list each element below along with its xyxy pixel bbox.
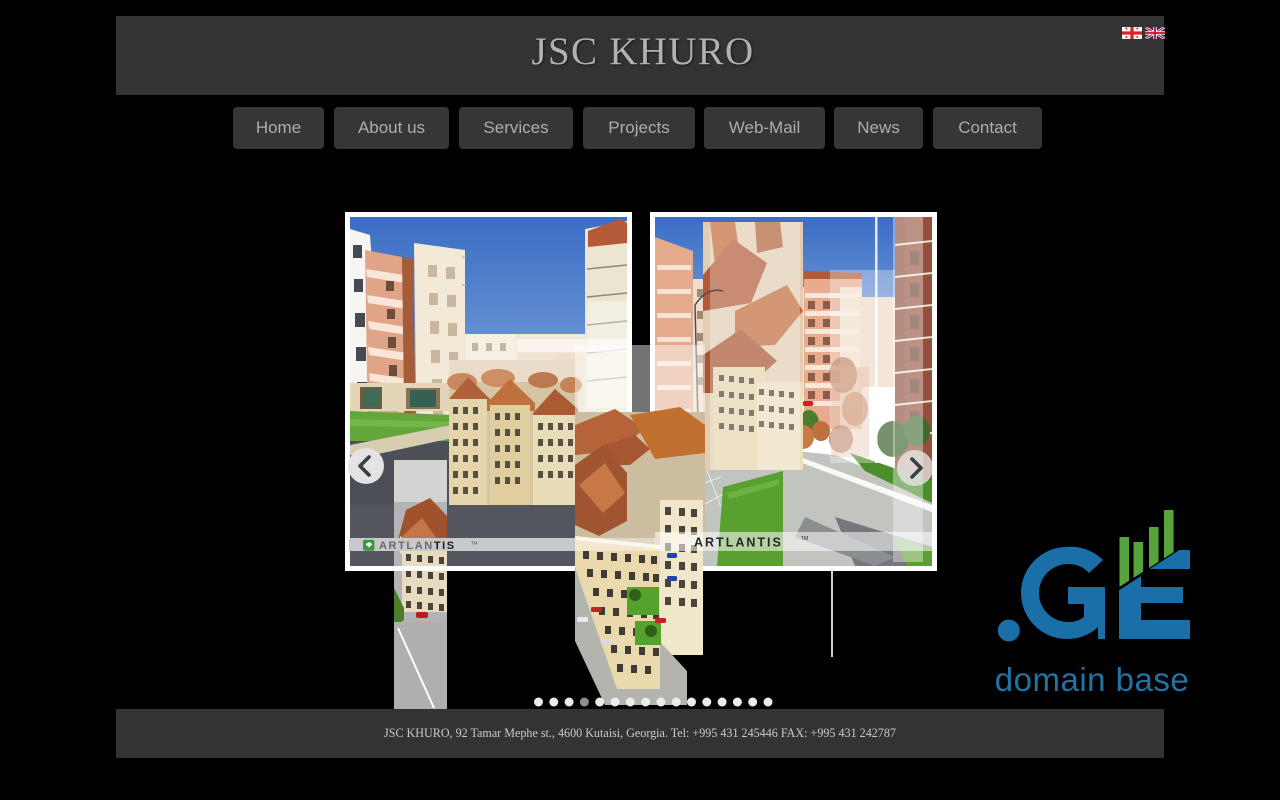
- svg-text:ARTLANTIS: ARTLANTIS: [379, 540, 456, 552]
- svg-text:ARTLANTIS: ARTLANTIS: [694, 536, 783, 550]
- svg-text:TM: TM: [801, 536, 808, 542]
- svg-text:TM: TM: [471, 540, 478, 545]
